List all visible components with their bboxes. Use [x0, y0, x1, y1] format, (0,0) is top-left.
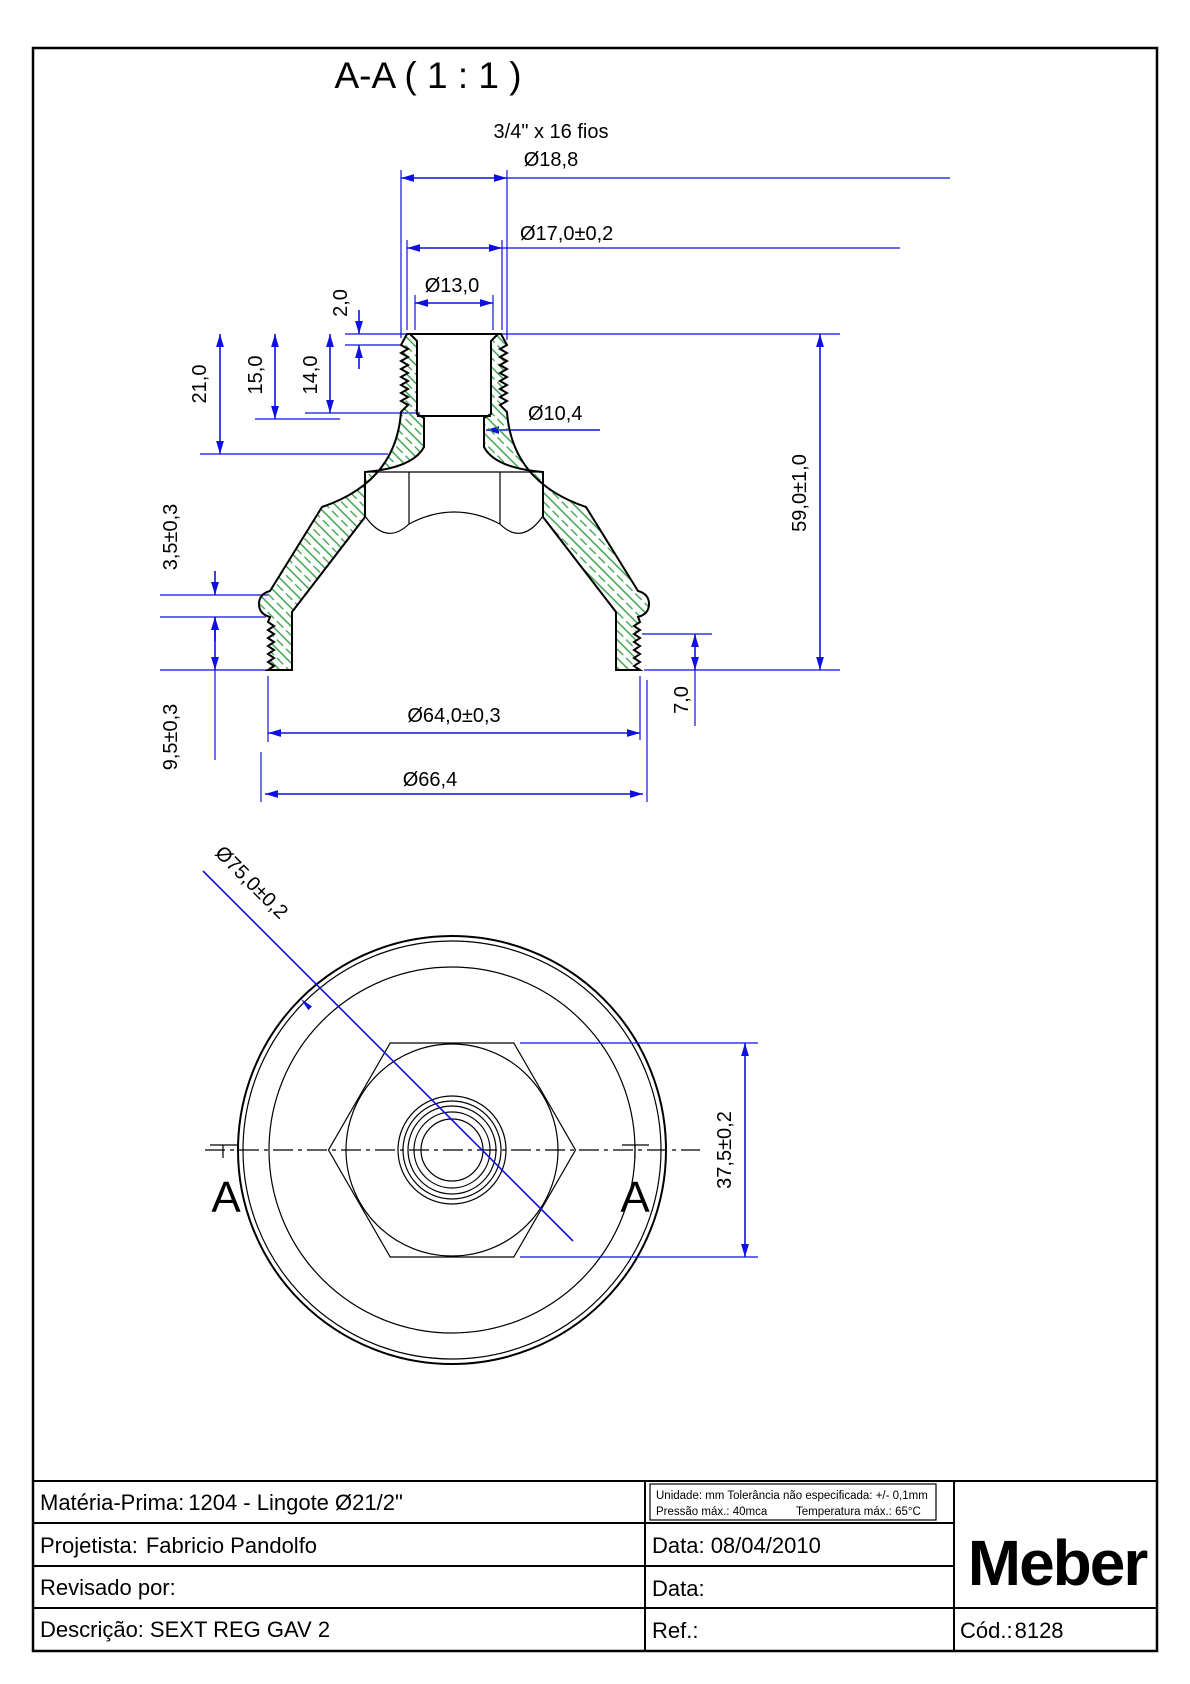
dim-d66-4: Ø66,4 — [403, 769, 457, 791]
dim-w37-5: 37,5±0,2 — [714, 1111, 736, 1189]
dim-h14: 14,0 — [300, 356, 322, 395]
dim-h2: 2,0 — [330, 289, 352, 317]
descricao-value: SEXT REG GAV 2 — [150, 1617, 330, 1642]
sheet-border — [33, 48, 1157, 1651]
data2-cell: Data: — [652, 1576, 705, 1601]
dim-h59: 59,0±1,0 — [789, 454, 811, 532]
notes-pressao: Pressão máx.: 40mca — [656, 1506, 768, 1518]
dim-h3-5: 3,5±0,3 — [160, 504, 182, 571]
notes-line1: Unidade: mm Tolerância não especificada:… — [656, 1490, 928, 1502]
d75-leader — [203, 871, 573, 1241]
dim-thread-spec: 3/4" x 16 fios — [494, 121, 609, 143]
revisado-label: Revisado por: — [40, 1575, 176, 1600]
section-dimension-lines — [160, 170, 950, 802]
view-title: A-A ( 1 : 1 ) — [334, 55, 521, 96]
projetista-value: Fabricio Pandolfo — [146, 1533, 317, 1558]
dim-d75: Ø75,0±0,2 — [210, 842, 292, 924]
cod-label: Cód.: — [960, 1618, 1013, 1643]
plan-view-labels: Ø75,0±0,2 37,5±0,2 A A — [210, 842, 736, 1222]
revisado-row: Revisado por: — [40, 1575, 176, 1600]
materia-prima-value: 1204 - Lingote Ø21/2" — [188, 1490, 403, 1515]
dim-d17: Ø17,0±0,2 — [520, 223, 613, 245]
materia-prima-label: Matéria-Prima: — [40, 1490, 184, 1515]
data1-cell: Data: 08/04/2010 — [652, 1533, 821, 1558]
section-label-a-left: A — [211, 1173, 241, 1222]
materia-prima-row: Matéria-Prima:1204 - Lingote Ø21/2" — [40, 1490, 403, 1515]
cad-drawing: 3/4" x 16 fios Ø18,8 Ø17,0±0,2 Ø13,0 2,0… — [0, 0, 1190, 1684]
dim-h7: 7,0 — [671, 686, 693, 714]
section-label-a-right: A — [620, 1173, 650, 1222]
meber-logo: Meber — [968, 1527, 1148, 1599]
projetista-label: Projetista: — [40, 1533, 138, 1558]
ref-cell: Ref.: — [652, 1618, 698, 1643]
dim-d10-4: Ø10,4 — [528, 403, 582, 425]
descricao-label: Descrição: — [40, 1617, 144, 1642]
cut-region-left — [259, 334, 424, 670]
section-dimension-labels: 3/4" x 16 fios Ø18,8 Ø17,0±0,2 Ø13,0 2,0… — [160, 121, 811, 791]
dim-d13: Ø13,0 — [425, 275, 479, 297]
descricao-row: Descrição:SEXT REG GAV 2 — [40, 1617, 330, 1642]
plan-view-drawing — [203, 871, 758, 1364]
hex-cavity — [365, 472, 543, 533]
dim-d18-8: Ø18,8 — [524, 149, 578, 171]
title-block: Matéria-Prima:1204 - Lingote Ø21/2" Proj… — [33, 1481, 1157, 1651]
drawing-sheet: 3/4" x 16 fios Ø18,8 Ø17,0±0,2 Ø13,0 2,0… — [0, 0, 1190, 1684]
section-cut-marks — [210, 1145, 649, 1158]
notes-temperatura: Temperatura máx.: 65°C — [796, 1506, 921, 1518]
projetista-row: Projetista:Fabricio Pandolfo — [40, 1533, 317, 1558]
dim-h15: 15,0 — [245, 356, 267, 395]
dim-h9-5: 9,5±0,3 — [160, 704, 182, 771]
cut-region-right — [484, 334, 649, 670]
dim-h21: 21,0 — [189, 365, 211, 404]
cod-value: 8128 — [1015, 1618, 1064, 1643]
dim-d64: Ø64,0±0,3 — [407, 705, 500, 727]
cod-cell: Cód.:8128 — [960, 1618, 1064, 1643]
